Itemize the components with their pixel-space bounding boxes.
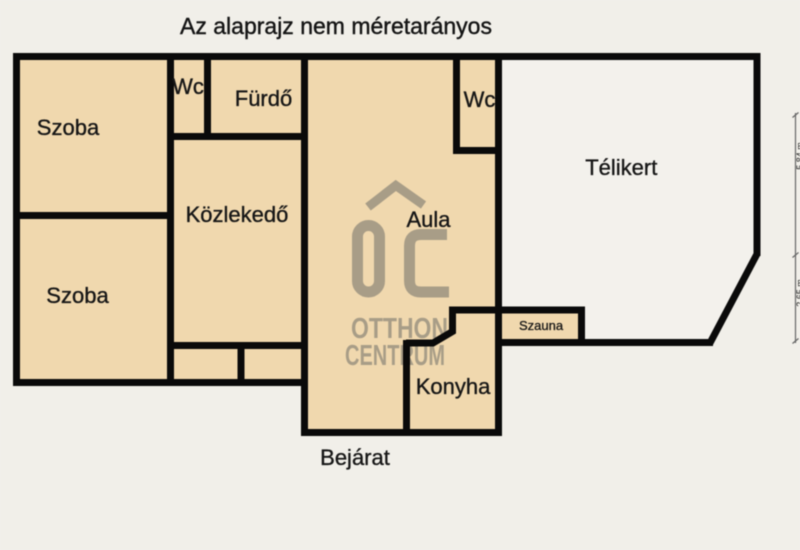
svg-text:Szauna: Szauna — [519, 318, 564, 333]
svg-text:Közlekedő: Közlekedő — [186, 202, 289, 227]
svg-text:5.84 m: 5.84 m — [795, 142, 800, 170]
svg-text:Aula: Aula — [406, 207, 451, 232]
svg-text:Szoba: Szoba — [37, 115, 100, 140]
svg-text:Télikert: Télikert — [585, 155, 657, 180]
svg-text:Wc: Wc — [464, 87, 496, 112]
svg-text:Bejárat: Bejárat — [320, 445, 390, 470]
svg-text:Az alaprajz nem méretarányos: Az alaprajz nem méretarányos — [180, 13, 492, 39]
svg-text:Konyha: Konyha — [416, 374, 491, 399]
svg-text:2.65 m: 2.65 m — [795, 279, 800, 307]
svg-text:Wc: Wc — [172, 74, 204, 99]
svg-text:Fürdő: Fürdő — [235, 86, 292, 111]
svg-text:Szoba: Szoba — [46, 283, 109, 308]
